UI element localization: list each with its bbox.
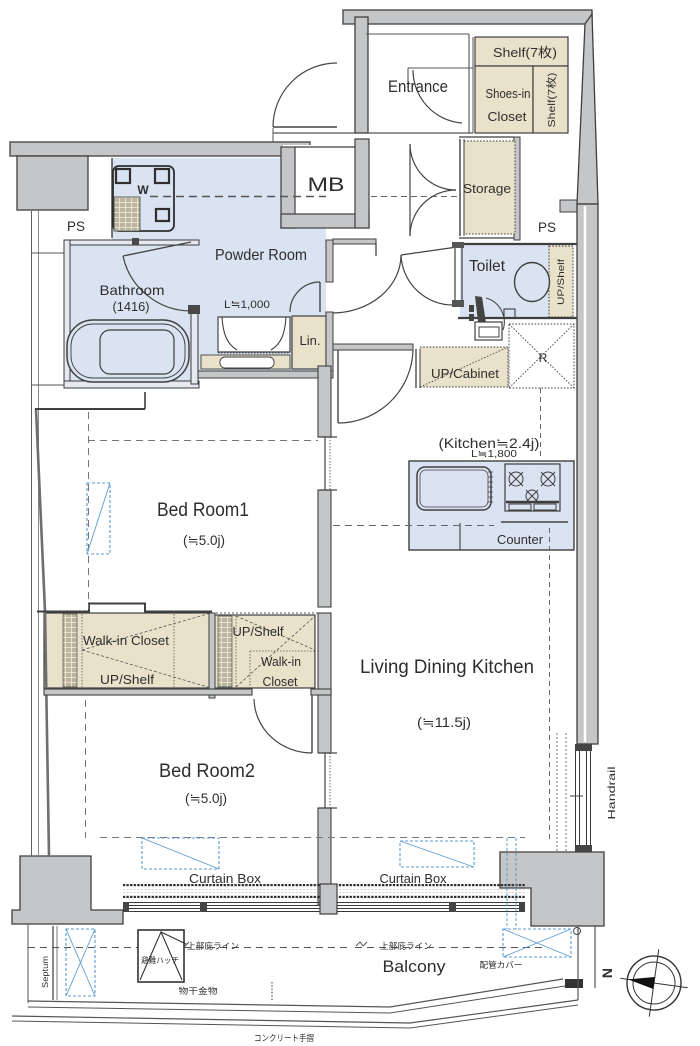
svg-text:Curtain Box: Curtain Box	[189, 872, 262, 886]
svg-text:物干金物: 物干金物	[179, 986, 219, 996]
svg-text:Living Dining Kitchen: Living Dining Kitchen	[360, 657, 534, 678]
svg-text:UP/Shelf: UP/Shelf	[233, 624, 284, 639]
svg-text:配管カバー: 配管カバー	[480, 960, 523, 970]
svg-text:Powder Room: Powder Room	[215, 247, 307, 264]
svg-text:Bed Room1: Bed Room1	[157, 500, 249, 521]
svg-text:MB: MB	[308, 175, 345, 196]
svg-text:避難ハッチ: 避難ハッチ	[141, 955, 179, 965]
svg-text:Walk-in Closet: Walk-in Closet	[83, 633, 169, 648]
svg-text:Walk-in: Walk-in	[261, 654, 301, 669]
svg-text:Shelf(7枚): Shelf(7枚)	[545, 73, 558, 128]
svg-text:PS: PS	[538, 220, 556, 235]
svg-text:W: W	[137, 183, 149, 197]
svg-text:L≒1,800: L≒1,800	[471, 449, 518, 460]
svg-text:N: N	[599, 968, 615, 978]
svg-text:Counter: Counter	[497, 532, 544, 547]
svg-text:Closet: Closet	[488, 109, 527, 124]
svg-text:Bathroom: Bathroom	[100, 282, 165, 298]
svg-text:コンクリート手摺: コンクリート手摺	[254, 1033, 314, 1043]
svg-text:L≒1,000: L≒1,000	[224, 299, 270, 311]
svg-text:(≒11.5j): (≒11.5j)	[417, 714, 471, 730]
svg-text:UP/Shelf: UP/Shelf	[556, 259, 567, 305]
svg-text:Septum: Septum	[41, 956, 50, 988]
svg-text:Curtain Box: Curtain Box	[380, 872, 448, 886]
svg-text:UP/Shelf: UP/Shelf	[100, 672, 154, 687]
svg-text:Bed Room2: Bed Room2	[159, 761, 255, 782]
svg-text:(≒5.0j): (≒5.0j)	[183, 532, 225, 548]
svg-text:上部庇ライン: 上部庇ライン	[380, 941, 432, 951]
svg-text:Closet: Closet	[263, 674, 298, 689]
svg-text:上部庇ライン: 上部庇ライン	[187, 941, 239, 951]
svg-text:(1416): (1416)	[113, 299, 150, 314]
svg-text:(≒5.0j): (≒5.0j)	[185, 790, 227, 806]
svg-text:Entrance: Entrance	[388, 77, 448, 96]
svg-text:Handrail: Handrail	[607, 767, 618, 820]
svg-text:Lin.: Lin.	[300, 333, 321, 348]
svg-text:UP/Cabinet: UP/Cabinet	[431, 367, 500, 381]
svg-text:Toilet: Toilet	[469, 258, 506, 275]
svg-text:Balcony: Balcony	[383, 957, 447, 976]
svg-text:Storage: Storage	[463, 181, 511, 196]
svg-text:R: R	[539, 351, 548, 365]
svg-text:Shelf(7枚): Shelf(7枚)	[493, 45, 557, 60]
svg-text:PS: PS	[67, 219, 85, 234]
svg-text:Shoes-in: Shoes-in	[486, 86, 531, 101]
